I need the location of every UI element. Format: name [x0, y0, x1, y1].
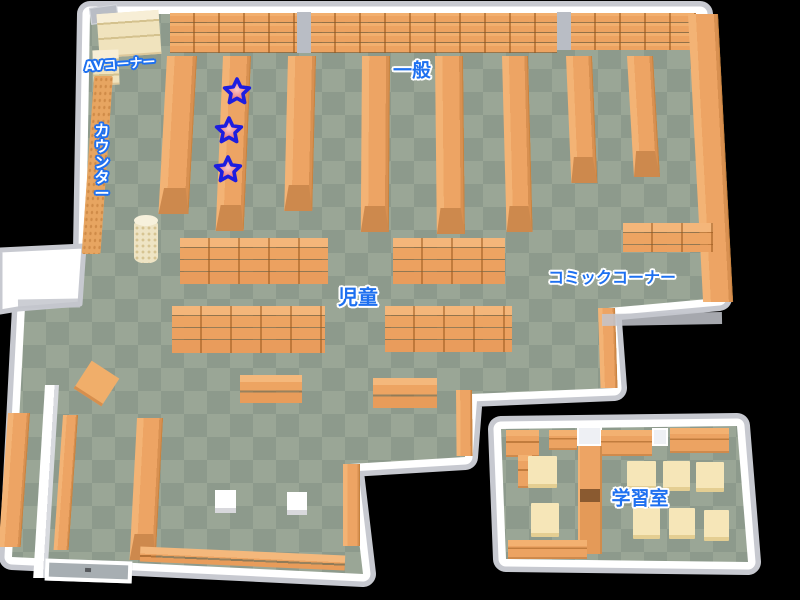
library-floor-map: AVコーナーカウンター一般児童コミックコーナー学習室: [0, 0, 800, 600]
labels-layer: AVコーナーカウンター一般児童コミックコーナー学習室: [0, 0, 800, 600]
area-label: 学習室: [611, 490, 668, 509]
area-label: AVコーナー: [84, 56, 156, 74]
area-label: コミックコーナー: [548, 270, 676, 286]
area-label: 児童: [338, 287, 378, 307]
area-label: カウンター: [94, 124, 109, 203]
area-label: 一般: [393, 62, 431, 81]
